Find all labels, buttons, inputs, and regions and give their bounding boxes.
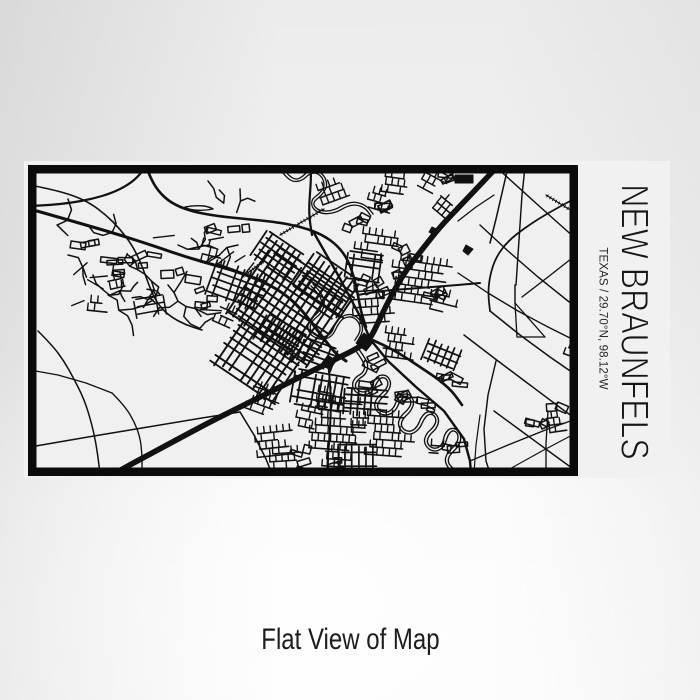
svg-text:NEW BRAUNFELS: NEW BRAUNFELS [613, 184, 657, 459]
svg-text:TEXAS / 29.70°N, 98.12°W: TEXAS / 29.70°N, 98.12°W [596, 247, 610, 390]
